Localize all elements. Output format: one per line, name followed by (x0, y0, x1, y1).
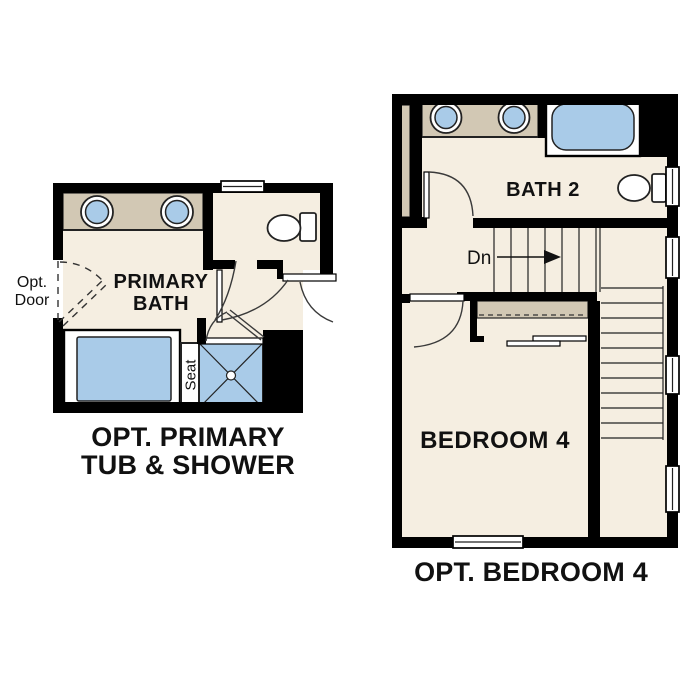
shower-drain-icon (227, 371, 236, 380)
primary-bath-label-line1: PRIMARY (114, 271, 209, 293)
dn-label: Dn (467, 248, 491, 269)
opt-door-label-line1: Opt. (17, 274, 47, 291)
window-icon (666, 466, 679, 512)
bath2-label: BATH 2 (506, 179, 580, 201)
opt-door-label-line2: Door (15, 292, 50, 309)
closet-bypass-door (533, 336, 586, 341)
cased-opening (283, 274, 336, 281)
tub-icon (546, 99, 640, 156)
toilet-icon (268, 213, 317, 241)
closet-bypass-door (507, 341, 560, 346)
bedroom4-floor (398, 100, 670, 542)
toilet-icon (618, 174, 666, 202)
window-icon (453, 536, 523, 548)
shower-icon (199, 338, 263, 408)
sink-icon (81, 196, 113, 228)
window-icon (666, 237, 679, 278)
tub-icon (64, 330, 180, 408)
primary-bath-plan: PRIMARY BATH Opt. Door Seat OPT. PRIMARY… (15, 181, 336, 480)
shower-glass (199, 338, 263, 344)
primary-bath-label-line2: BATH (133, 293, 189, 315)
bedroom4-caption: OPT. BEDROOM 4 (414, 557, 648, 587)
floor-plan-canvas: PRIMARY BATH Opt. Door Seat OPT. PRIMARY… (0, 0, 687, 687)
window-icon (666, 356, 679, 394)
sink-icon (161, 196, 193, 228)
bedroom4-plan: BATH 2 Dn BEDROOM 4 OPT. BEDROOM 4 (392, 94, 679, 587)
sink-icon (431, 102, 462, 133)
floorplan-page: PRIMARY BATH Opt. Door Seat OPT. PRIMARY… (0, 0, 687, 687)
seat-label: Seat (183, 359, 200, 391)
window-icon (666, 167, 679, 206)
primary-bath-vanity (63, 193, 203, 230)
sink-icon (499, 102, 530, 133)
primary-caption-line2: TUB & SHOWER (81, 450, 295, 480)
window-icon (221, 181, 264, 192)
primary-caption-line1: OPT. PRIMARY (91, 422, 284, 452)
bedroom4-label: BEDROOM 4 (420, 427, 570, 454)
door-leaf (410, 294, 464, 301)
door-leaf (424, 172, 429, 218)
